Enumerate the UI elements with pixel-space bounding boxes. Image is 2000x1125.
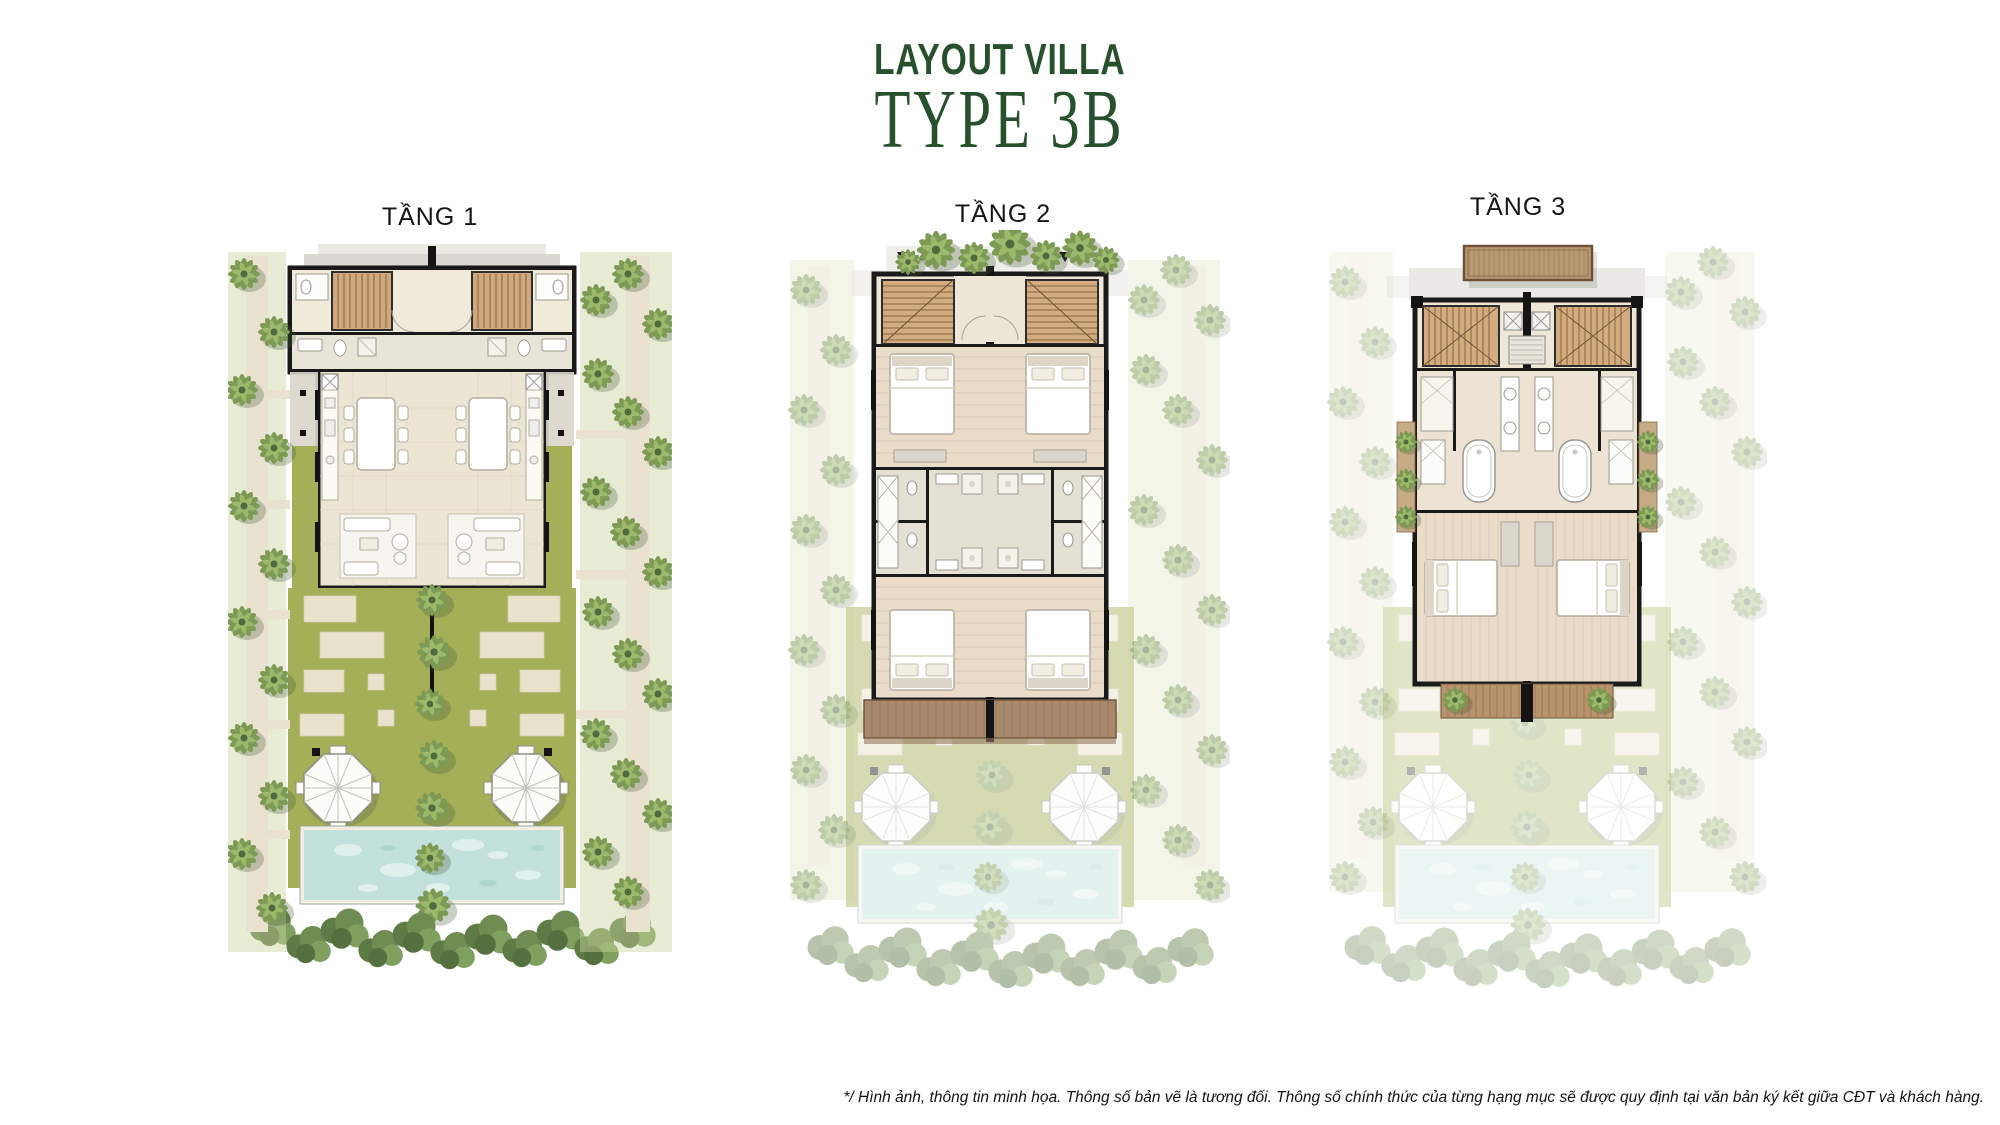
stair xyxy=(882,280,954,344)
villa-building xyxy=(1411,292,1643,704)
bedroom-bed xyxy=(1425,560,1497,616)
bathtub xyxy=(1463,440,1495,502)
villa-building xyxy=(871,266,1109,712)
wood-deck xyxy=(1441,684,1617,722)
floor-label-tang-2: TẦNG 2 xyxy=(955,200,1051,229)
floor-label-tang-1: TẦNG 1 xyxy=(382,203,478,232)
dining-table xyxy=(456,398,520,470)
layout-sheet: LAYOUT VILLA TYPE 3B TẦNG 1 TẦNG 2 TẦNG … xyxy=(0,0,2000,1125)
bedroom-bed xyxy=(1026,610,1090,690)
floor-plan-image-tang-3 xyxy=(1323,222,1767,992)
tree-border-right xyxy=(1128,254,1230,903)
villa-building xyxy=(290,246,574,606)
tree-border-left xyxy=(1327,252,1397,895)
bedroom-bed xyxy=(1026,354,1090,434)
stair xyxy=(1026,280,1098,344)
page-subtitle-text: TYPE 3B xyxy=(875,76,1125,164)
stair xyxy=(1423,306,1499,366)
bathtub xyxy=(1559,440,1591,502)
floor-plan-image-tang-2 xyxy=(786,230,1230,1000)
disclaimer-text: */ Hình ảnh, thông tin minh họa. Thông s… xyxy=(843,1089,1984,1107)
bedroom-bed xyxy=(890,610,954,690)
wood-canopy xyxy=(1464,246,1597,288)
bedroom-bed xyxy=(890,354,954,434)
tree-border-right xyxy=(576,252,672,952)
stair xyxy=(472,272,532,330)
tree-border-left xyxy=(228,252,296,952)
dining-table xyxy=(344,398,408,470)
floor-plan-image-tang-1 xyxy=(228,240,672,1010)
bedroom-bed xyxy=(1557,560,1629,616)
tree-border-left xyxy=(788,260,858,903)
wood-deck xyxy=(864,700,1116,744)
stair xyxy=(1555,306,1631,366)
tree-border-right xyxy=(1665,246,1767,895)
page-subtitle: TYPE 3B xyxy=(0,76,2000,164)
stair xyxy=(332,272,392,330)
floor-label-tang-3: TẦNG 3 xyxy=(1470,193,1566,222)
